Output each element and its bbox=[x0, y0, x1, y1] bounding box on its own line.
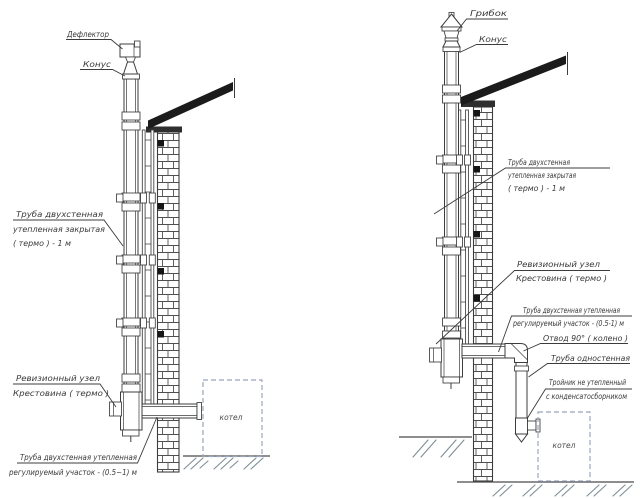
cone-leader bbox=[80, 70, 125, 77]
tee-label-2: с конденсатосборником bbox=[546, 392, 627, 401]
cone-adapter bbox=[443, 41, 460, 47]
cone-label: Конус bbox=[83, 60, 112, 69]
boiler-box: котел bbox=[538, 412, 590, 481]
adjustable-label-2: регулируемый участок - (0.5~1) м bbox=[8, 468, 137, 477]
diagram-canvas: котел Дефлектор Конус Труба двухстенная … bbox=[0, 0, 640, 498]
pipe-label-2: утепленная закрытая bbox=[507, 171, 576, 180]
right-diagram: котел Грибок Конус Труба двухстенная уте… bbox=[399, 9, 634, 496]
adjustable-label-1: Труба двухстенная утепленная bbox=[20, 453, 137, 462]
pipe-label-1: Труба двухстенная bbox=[508, 158, 570, 167]
elbow-label: Отвод 90° ( колено ) bbox=[543, 334, 628, 343]
single-pipe-leader bbox=[529, 364, 631, 378]
tee-condensate bbox=[516, 418, 541, 442]
single-pipe-label: Труба одностенная bbox=[551, 354, 630, 363]
cone-adapter bbox=[124, 62, 138, 74]
horizontal-pipe bbox=[142, 403, 202, 420]
revision-label-2: Крестовина ( термо ) bbox=[13, 389, 109, 398]
deflector-label: Дефлектор bbox=[66, 30, 109, 39]
roof bbox=[461, 52, 568, 107]
elbow-leader bbox=[524, 344, 629, 352]
cross-fitting bbox=[110, 392, 143, 442]
roof bbox=[146, 78, 235, 133]
deflector-leader bbox=[66, 40, 123, 50]
pipe-label-1: Труба двухстенная bbox=[16, 210, 103, 219]
cone-label: Конус bbox=[479, 35, 508, 44]
ground bbox=[399, 437, 634, 496]
tee-label-1: Тройник не утепленный bbox=[549, 378, 626, 387]
rain-cap bbox=[441, 13, 462, 42]
pipe-label-3: ( термо ) - 1 м bbox=[508, 184, 565, 193]
single-wall-pipe bbox=[515, 363, 529, 419]
adjustable-label-2: регулируемый участок - (0.5-1) м bbox=[512, 319, 624, 328]
cone-leader bbox=[460, 45, 509, 53]
ladder-bracket bbox=[458, 110, 468, 344]
boiler-box: котел bbox=[203, 380, 262, 457]
pipe-label-3: ( термо ) - 1 м bbox=[13, 239, 71, 248]
left-diagram: котел Дефлектор Конус Труба двухстенная … bbox=[8, 30, 270, 477]
chimney-installation-diagram: котел Дефлектор Конус Труба двухстенная … bbox=[0, 0, 640, 498]
revision-label-1: Ревизионный узел bbox=[16, 374, 100, 383]
boiler-label: котел bbox=[220, 413, 243, 422]
revision-label-1: Ревизионный узел bbox=[517, 260, 600, 269]
boiler-label: котел bbox=[553, 441, 576, 450]
cap-leader bbox=[457, 19, 508, 31]
cap-label: Грибок bbox=[470, 9, 508, 18]
revision-label-2: Крестовина ( термо ) bbox=[516, 274, 607, 283]
adjustable-label-1: Труба двухстенная утепленная bbox=[523, 306, 620, 315]
ground bbox=[183, 456, 270, 469]
pipe-label-2: утепленная закрытая bbox=[12, 225, 105, 234]
brick-wall bbox=[158, 131, 180, 472]
deflector bbox=[120, 41, 140, 62]
elbow-90 bbox=[505, 344, 528, 363]
ladder-bracket bbox=[142, 130, 154, 404]
cross-fitting bbox=[430, 339, 463, 389]
